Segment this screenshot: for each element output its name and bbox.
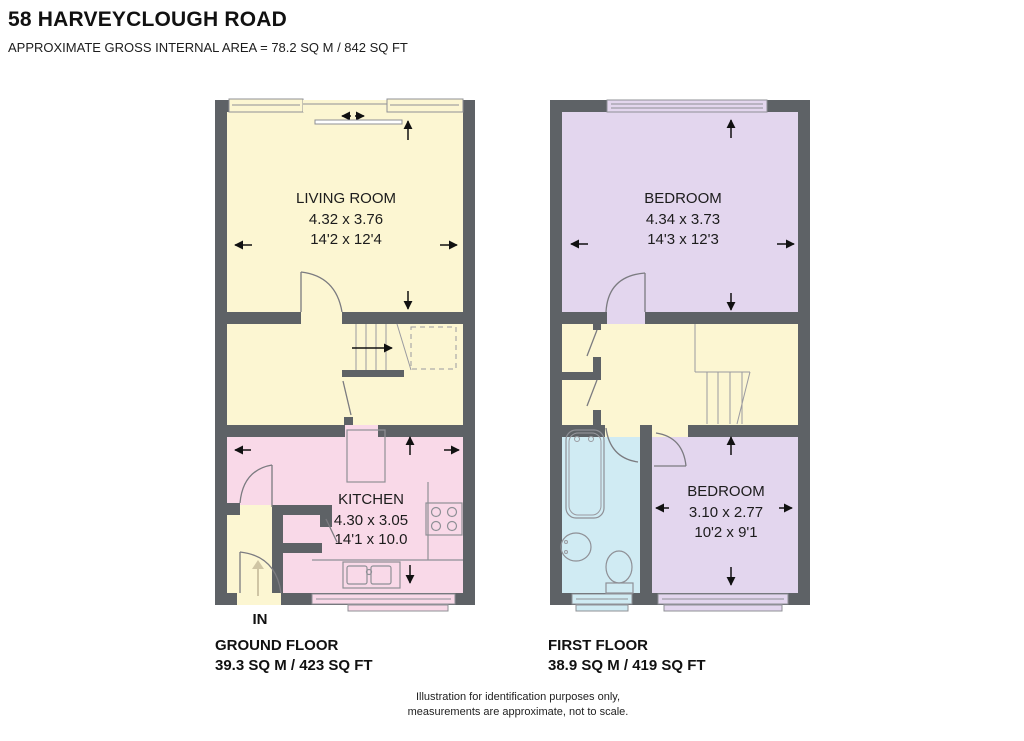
ff-window-bathroom [572, 594, 632, 611]
living-room-size-imperial: 14'2 x 12'4 [310, 231, 382, 248]
kitchen-size-metric: 4.30 x 3.05 [334, 512, 408, 529]
bedroom2-size-metric: 3.10 x 2.77 [689, 504, 763, 521]
bedroom1-name: BEDROOM [644, 190, 722, 207]
bedroom2-size-imperial: 10'2 x 9'1 [694, 524, 757, 541]
living-room-name: LIVING ROOM [296, 190, 396, 207]
floorplan-drawing: LIVING ROOM 4.32 x 3.76 14'2 x 12'4 KITC… [0, 0, 1024, 741]
ff-window-top [607, 100, 767, 112]
ground-floor-area: 39.3 SQ M / 423 SQ FT [215, 656, 373, 676]
first-floor-caption: FIRST FLOOR 38.9 SQ M / 419 SQ FT [548, 636, 706, 676]
ground-floor-plan: LIVING ROOM 4.32 x 3.76 14'2 x 12'4 KITC… [215, 99, 475, 611]
living-hall-floor [227, 112, 463, 425]
ff-window-bedroom2 [658, 594, 788, 611]
first-floor-plan: BEDROOM 4.34 x 3.73 14'3 x 12'3 BEDROOM … [550, 100, 810, 611]
gf-window-bottom [312, 594, 455, 611]
bedroom1-size-metric: 4.34 x 3.73 [646, 211, 720, 228]
kitchen-name: KITCHEN [338, 491, 404, 508]
first-floor-area: 38.9 SQ M / 419 SQ FT [548, 656, 706, 676]
bedroom1-size-imperial: 14'3 x 12'3 [647, 231, 719, 248]
gf-window-top-right [387, 99, 463, 112]
disclaimer-line2: measurements are approximate, not to sca… [268, 705, 768, 720]
gf-window-top-left [229, 99, 303, 112]
entrance-in-label: IN [240, 611, 280, 628]
disclaimer-line1: Illustration for identification purposes… [268, 690, 768, 705]
disclaimer: Illustration for identification purposes… [268, 690, 768, 720]
floorplan-page: 58 HARVEYCLOUGH ROAD APPROXIMATE GROSS I… [0, 0, 1024, 741]
ground-floor-caption: GROUND FLOOR 39.3 SQ M / 423 SQ FT [215, 636, 373, 676]
kitchen-size-imperial: 14'1 x 10.0 [335, 531, 408, 548]
bedroom2-name: BEDROOM [687, 483, 765, 500]
living-room-size-metric: 4.32 x 3.76 [309, 211, 383, 228]
first-floor-name: FIRST FLOOR [548, 636, 706, 656]
entrance-vestibule-floor [227, 505, 272, 593]
ground-floor-name: GROUND FLOOR [215, 636, 373, 656]
